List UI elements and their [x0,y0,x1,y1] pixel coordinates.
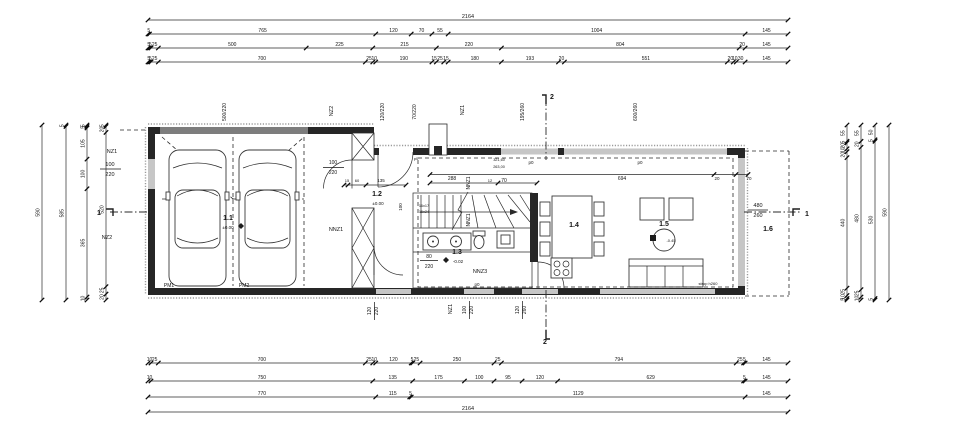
door-height-bottom: 220 [469,306,475,315]
dim-label: 5 [841,298,847,301]
room-label-1-3-bath: 1.3 [452,249,462,256]
section-marker-1-right: 1 [805,211,809,218]
sofa [629,259,703,287]
dim-label: 700 [258,357,267,363]
wall-tag-nnz1-stair-a: NNZ1 [466,176,472,189]
dim-135: 135 [377,178,385,183]
dim-label: 480 [855,214,861,223]
dim-label: 10 [855,296,861,302]
dim-label: 440 [841,218,847,227]
dim-label: 20 [855,141,861,147]
window-size-195-260: 195/260 [520,103,526,121]
dim-label: 10 [371,56,377,62]
level-bath: -0.02 [453,259,464,264]
dim-label: 180 [471,56,480,62]
door-width-bath: 80 [426,254,432,260]
dim-100-stair: 100 [398,203,403,211]
dim-label: 135 [389,375,398,381]
door-width-bottom: 100 [462,306,468,315]
wall-tag-nz1-top: NZ1 [460,105,466,115]
wall-tag-nnz1: NNZ1 [329,227,343,233]
bathroom-fixtures [423,231,514,250]
dim-15: 15 [345,178,350,183]
dim-label: 20 [841,152,847,158]
dim-label: 55 [841,130,847,136]
door-height-garage: 220 [329,170,338,176]
dim-label: 25 [841,289,847,295]
wc [474,236,484,249]
section-marker-2-top: 2 [550,94,554,101]
dim-label: 105 [81,139,87,148]
dim-label: 20 [100,294,106,300]
garage-entry-door-arc [324,160,353,189]
dim-70: 70 [501,178,507,184]
car-1 [166,150,229,286]
dim-label: 190 [400,56,409,62]
level-marker-bath [443,257,449,263]
dim-label: 629 [646,375,655,381]
window-height-right: 260 [753,213,762,219]
dim-label: 530 [869,216,875,225]
dim-label: 5 [743,375,746,381]
window-height-bottom-a: 220 [374,307,380,316]
section-flag-1-left [106,209,113,216]
dim-label: 120 [389,357,398,363]
interior-dim-lines [342,172,750,187]
dim-12: 12 [488,178,493,183]
window-left-nz1 [148,159,155,189]
wall-tag-nz1-bottom: NZ1 [448,304,454,314]
stair-tread-note: 16x24 [419,210,429,214]
dim-label: 5 [743,357,746,363]
car-2 [236,150,299,286]
p0-tag-living-b: p0 [637,160,643,165]
dim-label: 750 [258,375,267,381]
dim-label: 5 [147,28,150,34]
dim-label: 1004 [591,28,602,34]
dim-label: 175 [434,375,443,381]
note-263-00: 263,00 [493,165,505,169]
level-living: -0.45 [666,238,676,243]
level-marker-living [650,235,656,241]
dim-label: 551 [642,56,651,62]
room-label-1-6-terrace: 1.6 [763,226,773,233]
window-height-bottom-b: 260 [522,306,528,315]
room-label-1-4-dining: 1.4 [569,222,579,229]
dim-label: 145 [762,357,771,363]
dim-label: 15 [443,56,449,62]
stair-direction-arrow [510,209,518,215]
dim-288: 288 [448,176,457,182]
corridor-door-arc [374,246,403,275]
door-height-bath: 220 [425,264,434,270]
window-bottom-living [600,289,715,294]
dim-label: 5 [869,139,875,142]
door-bottom-100-220 [464,289,494,294]
dim-label: 25 [855,290,861,296]
dim-label: 590 [36,208,42,217]
dim-label: 5 [60,124,66,127]
dim-label: 794 [615,357,624,363]
dim-label: 25 [152,357,158,363]
door-width-garage: 100 [329,160,338,166]
dim-label: 145 [762,56,771,62]
side-table-2 [669,198,693,220]
window-600-260 [564,149,727,155]
side-table-1 [640,198,664,220]
window-bottom-120-260 [522,289,558,294]
parking-spot-1: PM1 [164,283,175,289]
section-flag-2-top [542,95,546,104]
dim-label: 145 [762,42,771,48]
entry-door-size-label: 120/220 [380,103,386,121]
dim-label: 770 [258,391,267,397]
dim-label: 100 [475,375,484,381]
window-width-bottom-a: 120 [367,307,373,316]
dining-set [540,196,604,278]
wall-tag-nz2-top: NZ2 [329,106,335,116]
dim-label: 25 [152,42,158,48]
dim-label: 30 [738,56,744,62]
window-bottom-120-220 [376,289,411,294]
dim-label: 1129 [573,391,584,397]
p0-tag-porch: p0 [414,156,419,161]
dim-label: 765 [258,28,267,34]
dim-label: 15 [431,56,437,62]
dim-label: 500 [228,42,237,48]
dim-label: 120 [389,28,398,34]
opening-size-label: 70/220 [412,104,418,120]
dim-label: 20 [100,126,106,132]
section-flag-2-bottom [546,330,550,339]
window-width-left: 100 [105,162,114,168]
dim-label: 804 [616,42,625,48]
window-width-right: 480 [753,203,762,209]
dim-70-right: 70 [746,176,752,181]
note-321-60: 321,60 [493,158,505,162]
dim-label: 25 [414,357,420,363]
level-garage: ±0.00 [222,225,234,230]
dim-label: 10 [147,375,153,381]
wall-tag-nz1-left: NZ1 [107,149,117,155]
stove [551,258,572,278]
dim-label: 25 [152,56,158,62]
dim-60: 60 [355,178,360,183]
window-195-260 [501,149,558,155]
room-label-1-2-entry: 1.2 [372,191,382,198]
room-label-1-5-living: 1.5 [659,221,669,228]
dim-label: 590 [883,208,889,217]
stairs [420,192,532,230]
room-label-1-1-garage: 1.1 [223,215,233,222]
dim-label: 20 [739,42,745,48]
dim-label: 25 [100,287,106,293]
p0-tag-living-a: p0 [528,160,534,165]
dim-label: 70 [419,28,425,34]
window-480-260 [738,158,745,288]
dim-label: 50 [869,129,875,135]
floor-plan-canvas: 2164576512070551004145552550022521522080… [0,0,960,434]
dim-label: 120 [536,375,545,381]
garage-door-size-label: 500/220 [222,103,228,121]
dim-label: 2164 [462,406,474,412]
ceiling-note: strop h260 [699,281,719,286]
wall-tag-nz2-left: NZ2 [102,235,112,241]
wall-tag-nnz3: NNZ3 [473,269,487,275]
dim-label: 145 [762,391,771,397]
floor-plan-page: 2164576512070551004145552550022521522080… [0,0,960,434]
level-entry: ±0.00 [372,201,384,206]
dim-label: 2164 [462,14,474,20]
dim-label: 225 [335,42,344,48]
dim-label: 365 [81,239,87,248]
dim-label: 10 [81,296,87,302]
dim-label: 585 [60,209,66,218]
window-width-bottom-b: 120 [515,306,521,315]
dim-label: 10 [732,56,738,62]
dim-label: 115 [389,391,397,397]
dim-label: 25 [437,56,443,62]
dim-label: 220 [465,42,474,48]
dim-label: 55 [855,130,861,136]
dim-label: 55 [437,28,443,34]
wall-tag-nnz1-stair-b: NNZ1 [466,213,472,226]
dim-label: 100 [81,170,87,179]
section-marker-1-left: 1 [97,210,101,217]
window-height-left: 220 [105,172,114,178]
dim-label: 5 [81,126,87,129]
dim-label: 145 [762,28,771,34]
dim-label: 95 [505,375,511,381]
generated-annotations: 2164576512070551004145552550022521522080… [36,14,892,414]
dim-label: 25 [495,357,501,363]
dim-label: 145 [762,375,771,381]
dim-label: 700 [258,56,267,62]
dim-20: 20 [714,176,720,181]
dim-label: 5 [869,298,875,301]
dim-label: 5 [409,391,412,397]
window-size-600-260: 600/260 [633,103,639,121]
parking-spot-2: PM2 [239,283,250,289]
stair-riser-note: 16x17 [419,204,429,208]
dim-label: 10 [371,357,377,363]
dim-label: 193 [526,56,535,62]
p0-tag-nnz3: p0 [474,282,480,287]
garage-door-band [160,127,308,134]
section-marker-2-bottom: 2 [543,339,547,346]
dim-label: 215 [400,42,409,48]
section-flag-1-right [793,209,800,216]
dim-label: 20 [559,56,565,62]
dim-label: 250 [453,357,462,363]
dim-694: 694 [618,176,627,182]
